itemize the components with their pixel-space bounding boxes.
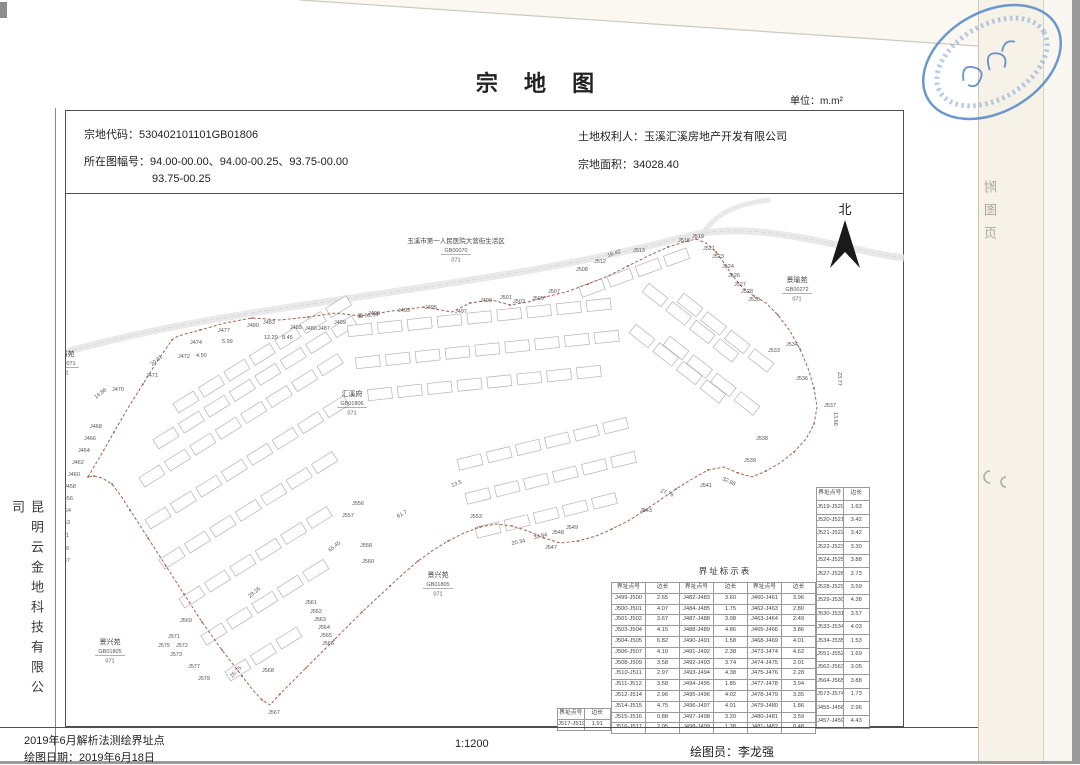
back-page-label-mirrored: 附图页 (982, 180, 1001, 270)
boundary-table-cell: J506-J507 (612, 647, 646, 658)
building-footprint (415, 349, 440, 362)
boundary-table-cell: J499-J500 (612, 593, 646, 604)
boundary-table-cell: 4.62 (782, 647, 816, 658)
boundary-point (799, 348, 801, 350)
boundary-table-cell: 2.38 (714, 647, 748, 658)
boundary-table-cell: J500-J501 (612, 604, 646, 615)
boundary-table-cell: J573-J574 (817, 688, 844, 701)
boundary-table-cell: J512-J514 (612, 690, 646, 701)
building-footprint (221, 459, 247, 481)
building-footprint (164, 449, 190, 471)
boundary-table-cell: J516-J517 (612, 723, 646, 734)
boundary-table-main: 界址点号边长界址点号边长界址点号边长J499-J5002.65J482-J483… (611, 582, 816, 734)
boundary-table-cell: 2.97 (646, 669, 680, 680)
boundary-point-label: 65.45 (328, 540, 343, 553)
boundary-point-label: J571 (168, 634, 180, 640)
boundary-point-label: J470 (112, 387, 124, 393)
boundary-table-cell: 1.75 (714, 604, 748, 615)
boundary-point-label: 14.86 (94, 387, 109, 400)
svg-text:景瑜苑: 景瑜苑 (787, 275, 808, 284)
building-footprint (204, 395, 230, 417)
boundary-table-cell: 6.82 (646, 636, 680, 647)
boundary-point-label: J548 (552, 530, 564, 536)
building-footprint (226, 607, 252, 629)
boundary-point-label: J558 (360, 543, 372, 549)
boundary-table-cell: 4.38 (714, 669, 748, 680)
building-footprint (427, 381, 452, 394)
svg-text:GB01806: GB01806 (340, 401, 363, 407)
building-footprint (317, 354, 343, 376)
building-footprint (385, 352, 410, 365)
boundary-point-label: J449 (66, 546, 69, 552)
boundary-point (305, 667, 307, 669)
building-footprint (306, 332, 332, 354)
boundary-table-cell: J515-J516 (612, 712, 646, 723)
boundary-point-label: J508 (576, 267, 588, 273)
boundary-table-cell: 4.02 (714, 690, 748, 701)
building-footprint (573, 425, 599, 441)
boundary-table-cell: 0.88 (646, 712, 680, 723)
boundary-table-cell: J497-J498 (680, 712, 714, 723)
back-sheet (978, 0, 1044, 764)
boundary-point-label: 13.66 (832, 412, 838, 426)
boundary-point-label: J527 (734, 282, 746, 288)
boundary-point-label: 29.26 (247, 586, 261, 599)
building-footprint (527, 304, 552, 317)
boundary-table-cell: 4.86 (714, 626, 748, 637)
building-footprint (196, 475, 222, 497)
boundary-table-cell: 边长 (714, 583, 748, 594)
boundary-table-cell: 2.96 (646, 690, 680, 701)
building-footprint (457, 454, 483, 470)
building-footprint (734, 392, 760, 415)
boundary-point-label: J564 (318, 625, 330, 631)
boundary-point (201, 621, 203, 623)
boundary-table-cell: J455-J456 (817, 702, 844, 715)
boundary-point-label: 27.76 (659, 488, 674, 498)
svg-text:GB00070: GB00070 (444, 248, 467, 254)
building-footprint (204, 570, 230, 592)
boundary-point (469, 302, 471, 304)
boundary-table-right-column: 界址点号边长J519-J5201.63J520-J5213.42J521-J52… (816, 487, 870, 729)
building-footprint (281, 522, 307, 544)
boundary-table-cell: 1.63 (843, 501, 870, 514)
svg-text:071: 071 (347, 411, 356, 417)
footer-divider (0, 727, 978, 728)
boundary-point-label: J573 (170, 652, 182, 658)
boundary-point-label: J493 (398, 308, 410, 314)
boundary-table-cell: J473-J474 (748, 647, 782, 658)
north-arrow-icon: 北 (830, 202, 860, 268)
boundary-table-cell: J521-J522 (817, 528, 844, 541)
building-footprint (229, 379, 255, 401)
area-label: 景兴苑GB01805071 (423, 570, 453, 598)
boundary-table-cell: 0.48 (782, 723, 816, 734)
boundary-table-cell: 3.86 (782, 626, 816, 637)
boundary-table-cell: 4.75 (646, 701, 680, 712)
building-footprint (292, 370, 318, 392)
boundary-table-cell: 3.60 (714, 593, 748, 604)
building-footprint (178, 411, 204, 433)
boundary-point (361, 611, 363, 613)
building-footprint (190, 433, 216, 455)
boundary-table-cell: 4.01 (782, 636, 816, 647)
building-footprint (564, 333, 589, 346)
boundary-point (675, 488, 677, 490)
building-footprint (535, 336, 560, 349)
boundary-point (251, 317, 253, 319)
building-footprint (247, 443, 273, 465)
boundary-table-cell: 2.65 (646, 593, 680, 604)
map-scale: 1:1200 (455, 738, 489, 750)
scan-background-right (1072, 0, 1080, 764)
boundary-point-label: J524 (722, 264, 734, 270)
building-footprint (465, 488, 491, 504)
building-footprint (586, 298, 611, 311)
building-footprint (562, 500, 588, 516)
boundary-table-cell: 3.08 (714, 615, 748, 626)
boundary-point-label: J477 (218, 328, 230, 334)
boundary-point (221, 649, 223, 651)
area-label: 宗地面积： (578, 159, 633, 171)
boundary-table-cell: 2.96 (843, 702, 870, 715)
boundary-point-label: J454 (66, 508, 71, 514)
boundary-table-cell: J522-J523 (817, 541, 844, 554)
building-footprint (224, 359, 250, 381)
building-footprint (153, 427, 179, 449)
boundary-table-cell: J562-J563 (817, 662, 844, 675)
back-sheet-edge (1043, 0, 1073, 764)
area-label: 玉溪市第一人民医院大营街生活区GB00070071 (407, 236, 505, 264)
boundary-table-cell: 界址点号 (558, 709, 585, 720)
boundary-point-label: J447 (66, 558, 70, 564)
svg-text:景兴苑: 景兴苑 (428, 570, 449, 579)
boundary-point-label: J560 (362, 559, 374, 565)
boundary-table-cell: 边长 (584, 709, 611, 720)
boundary-point-label: 16.42 (607, 249, 622, 259)
building-footprint (286, 467, 312, 489)
boundary-point-label: J503 (513, 299, 525, 305)
building-footprint (255, 363, 281, 385)
boundary-point-label: J480 (247, 323, 259, 329)
boundary-point-label: 4.50 (196, 353, 207, 359)
building-footprint (347, 323, 372, 336)
boundary-table-cell: 3.42 (843, 514, 870, 527)
boundary-point-label: J512 (594, 259, 606, 265)
boundary-table-cell: J517-J519 (558, 719, 585, 730)
boundary-table-cell: J519-J520 (817, 501, 844, 514)
building-footprint (629, 324, 655, 347)
building-footprint (312, 452, 338, 474)
survey-method-note: 2019年6月解析法测绘界址点 (24, 732, 165, 748)
boundary-table-cell: J462-J463 (748, 604, 782, 615)
page-title: 宗 地 图 (370, 66, 710, 98)
boundary-point-label: 20.01 (150, 354, 165, 367)
land-owner: 土地权利人：玉溪汇溪房地产开发有限公司 (578, 128, 787, 144)
building-footprint (579, 279, 605, 298)
boundary-table-cell: J463-J464 (748, 615, 782, 626)
parcel-area: 宗地面积：34028.40 (578, 156, 679, 172)
svg-text:071: 071 (433, 592, 442, 598)
back-sheet-corner (300, 0, 978, 46)
owner-label: 土地权利人： (578, 131, 644, 143)
boundary-point (793, 451, 795, 453)
boundary-point-label: J568 (262, 668, 274, 674)
building-footprint (505, 340, 530, 353)
building-footprint (277, 575, 303, 597)
building-footprint (159, 547, 185, 569)
svg-text:景裕苑: 景裕苑 (66, 349, 75, 358)
building-footprint (504, 515, 530, 531)
boundary-table-cell: 界址点号 (817, 488, 844, 501)
boundary-table-cell: J528-J529 (817, 581, 844, 594)
building-footprint (230, 554, 256, 576)
sheet-margin-line (55, 108, 56, 761)
boundary-point (171, 339, 173, 341)
map-sheet-numbers: 所在图幅号：94.00-00.00、94.00-00.25、93.75-00.0… (84, 153, 348, 169)
boundary-point-label: 32.98 (721, 476, 736, 487)
boundary-point-label: J557 (342, 513, 354, 519)
building-footprint (261, 483, 287, 505)
boundary-table-cell: J508-J509 (612, 658, 646, 669)
area-label: 景瑜苑GB00272071 (782, 275, 812, 303)
boundary-table-cell: J494-J495 (680, 680, 714, 691)
boundary-table-cell: J529-J530 (817, 595, 844, 608)
parcel-code-value: 530402101101GB01806 (139, 129, 258, 141)
boundary-table-cell: 3.42 (843, 528, 870, 541)
boundary-point (777, 314, 779, 316)
boundary-table-cell: J527-J528 (817, 568, 844, 581)
boundary-point-label: J562 (310, 609, 322, 615)
boundary-point-label: J561 (305, 600, 317, 606)
boundary-table-cell: 3.88 (843, 675, 870, 688)
boundary-point-label: J513 (633, 248, 645, 254)
boundary-point (737, 472, 739, 474)
boundary-table-cell: 4.01 (714, 701, 748, 712)
boundary-point-label: 61.7 (396, 509, 408, 519)
boundary-point (389, 585, 391, 587)
map-sheet-numbers-2: 93.75-00.25 (152, 173, 211, 185)
boundary-point-label: J547 (545, 545, 557, 551)
svg-text:玉溪市第一人民医院大营街生活区: 玉溪市第一人民医院大营街生活区 (407, 236, 505, 245)
surveying-company-vertical: 昆明云金地科技有限公司 (8, 500, 46, 715)
boundary-table-cell: J493-J494 (680, 669, 714, 680)
boundary-table-cell: J520-J521 (817, 514, 844, 527)
building-footprint (210, 515, 236, 537)
parcel-code-label: 宗地代码： (84, 129, 139, 141)
boundary-point-label: J572 (176, 643, 188, 649)
boundary-point-label: J486 (305, 326, 317, 332)
boundary-table-cell: 3.58 (646, 658, 680, 669)
building-footprint (272, 427, 298, 449)
boundary-table-cell: J484-J485 (680, 604, 714, 615)
building-footprint (635, 258, 661, 277)
building-footprint (475, 343, 500, 356)
boundary-point-label: J556 (352, 501, 364, 507)
boundary-table-cell: J481-J482 (748, 723, 782, 734)
boundary-point-label: J539 (744, 458, 756, 464)
boundary-point (544, 296, 546, 298)
boundary-point-label: J563 (314, 617, 326, 623)
boundary-table-cell: 边长 (646, 583, 680, 594)
boundary-table-cell: 界址点号 (612, 583, 646, 594)
boundary-point-label: J549 (566, 525, 578, 531)
boundary-table-cell: J501-J502 (612, 615, 646, 626)
boundary-point (87, 476, 89, 478)
building-footprint (255, 538, 281, 560)
building-footprint (437, 314, 462, 327)
boundary-point (667, 246, 669, 248)
building-footprint (249, 343, 275, 365)
building-footprint (576, 365, 601, 378)
building-footprint (544, 432, 570, 448)
unit-label: 单位：m.m² (790, 92, 940, 107)
building-footprint (215, 417, 241, 439)
north-label: 北 (838, 202, 851, 217)
boundary-table-cell: 3.05 (843, 662, 870, 675)
boundary-table-cell: J511-J512 (612, 680, 646, 691)
boundary-point-label: J487 (318, 326, 330, 332)
boundary-point (129, 509, 131, 511)
boundary-point-label: 12.29 (264, 335, 278, 341)
svg-text:071: 071 (451, 258, 460, 264)
boundary-point (183, 593, 185, 595)
boundary-table-cell: J503-J504 (612, 626, 646, 637)
boundary-point-label: J489 (334, 320, 346, 326)
boundary-table-cell: J475-J476 (748, 669, 782, 680)
boundary-point (707, 469, 709, 471)
boundary-table-cell: J495-J496 (680, 690, 714, 701)
boundary-point-label: J519 (692, 234, 704, 240)
scanned-parcel-map-document: 宗 地 图 单位：m.m² 宗地代码：530402101101GB01806 所… (0, 0, 1080, 764)
building-footprint (494, 481, 520, 497)
boundary-point-label: J472 (178, 354, 190, 360)
building-footprint (591, 493, 617, 509)
building-footprint (611, 451, 637, 467)
drafter: 绘图员：李龙强 (690, 743, 774, 760)
building-footprint (145, 507, 171, 529)
boundary-table-cell: J498-J499 (680, 723, 714, 734)
boundary-table-cell: J504-J505 (612, 636, 646, 647)
building-footprint (517, 372, 542, 385)
boundary-point-label: J507 (548, 289, 560, 295)
building-footprint (487, 375, 512, 388)
sheet-no-label: 所在图幅号： (84, 156, 150, 168)
sheet-top-edge (300, 0, 978, 46)
boundary-point-label: J495 (425, 305, 437, 311)
boundary-table-cell: 界址点号 (680, 583, 714, 594)
scan-corner-mark (0, 2, 7, 18)
svg-text:GB00071: GB00071 (66, 361, 76, 367)
boundary-table-cell: J479-J480 (748, 701, 782, 712)
boundary-point (611, 528, 613, 530)
boundary-point-label: J526 (728, 273, 740, 279)
boundary-point (113, 431, 115, 433)
boundary-point (765, 470, 767, 472)
building-footprint (523, 473, 549, 489)
building-footprint (298, 412, 324, 434)
boundary-table-cell: 2.05 (646, 723, 680, 734)
boundary-table-cell: 4.38 (843, 595, 870, 608)
boundary-table-cell: 界址点号 (748, 583, 782, 594)
boundary-table-cell: J487-J488 (680, 615, 714, 626)
boundary-table-cell: 3.57 (843, 608, 870, 621)
boundary-table-cell: 1.86 (782, 701, 816, 712)
boundary-point-label: J553 (470, 514, 482, 520)
boundary-table-cell: J564-J565 (817, 675, 844, 688)
boundary-point-label: 35.84 (533, 532, 548, 541)
building-footprint (547, 368, 572, 381)
boundary-point (715, 251, 717, 253)
building-footprint (515, 439, 541, 455)
boundary-point-label: 20.34 (511, 538, 526, 547)
boundary-table-cell: J524-J525 (817, 554, 844, 567)
boundary-point-label: J451 (66, 533, 69, 539)
boundary-table-cell: J460-J461 (748, 593, 782, 604)
boundary-point-label: J464 (78, 448, 90, 454)
boundary-table-cell: 4.10 (646, 647, 680, 658)
boundary-point-label: J536 (796, 376, 808, 382)
boundary-point-label: J569 (180, 618, 192, 624)
boundary-table-cell: J480-J481 (748, 712, 782, 723)
boundary-table-cell: 3.88 (843, 554, 870, 567)
building-footprint (603, 417, 629, 433)
sheet-no-line1: 94.00-00.00、94.00-00.25、93.75-00.00 (150, 156, 348, 168)
boundary-table-cell: 3.59 (782, 712, 816, 723)
boundary-point (511, 525, 513, 527)
building-footprint (642, 283, 668, 306)
building-footprint (407, 317, 432, 330)
boundary-table-cell: 1.85 (714, 680, 748, 691)
building-footprint (594, 330, 619, 343)
boundary-table-cell: J482-J483 (680, 593, 714, 604)
boundary-table-cell: 3.67 (646, 615, 680, 626)
boundary-point-label: J566 (322, 641, 334, 647)
boundary-point-label: J541 (700, 483, 712, 489)
svg-text:GB01805: GB01805 (426, 582, 449, 588)
building-footprint (306, 506, 332, 528)
boundary-point-label: J530 (748, 297, 760, 303)
boundary-point-label: J462 (72, 460, 84, 466)
svg-text:071: 071 (66, 371, 69, 377)
road (66, 231, 904, 352)
boundary-point-label: J521 (703, 246, 715, 252)
building-footprint (184, 531, 210, 553)
boundary-point-label: J579 (198, 676, 210, 682)
building-footprint (533, 507, 559, 523)
svg-text:GB01805: GB01805 (98, 649, 121, 655)
boundary-table-cell: 边长 (782, 583, 816, 594)
boundary-point-label: J460 (68, 472, 80, 478)
boundary-point (479, 526, 481, 528)
boundary-table-cell: 1.38 (714, 723, 748, 734)
boundary-point-label: J538 (756, 436, 768, 442)
boundary-table-cell: 1.53 (843, 635, 870, 648)
boundary-point-label: J458 (66, 484, 76, 490)
boundary-table-cell: J530-J531 (817, 608, 844, 621)
boundary-point-label: J453 (66, 520, 70, 526)
boundary-point (813, 423, 815, 425)
building-footprint (556, 301, 581, 314)
boundary-table-title: 界址标示表 (660, 565, 790, 577)
building-footprint (467, 311, 492, 324)
boundary-table-cell: 2.73 (843, 568, 870, 581)
boundary-point (577, 540, 579, 542)
building-footprint (266, 385, 292, 407)
boundary-table-cell: 1.91 (584, 719, 611, 730)
boundary-point (111, 483, 113, 485)
boundary-point (142, 383, 144, 385)
